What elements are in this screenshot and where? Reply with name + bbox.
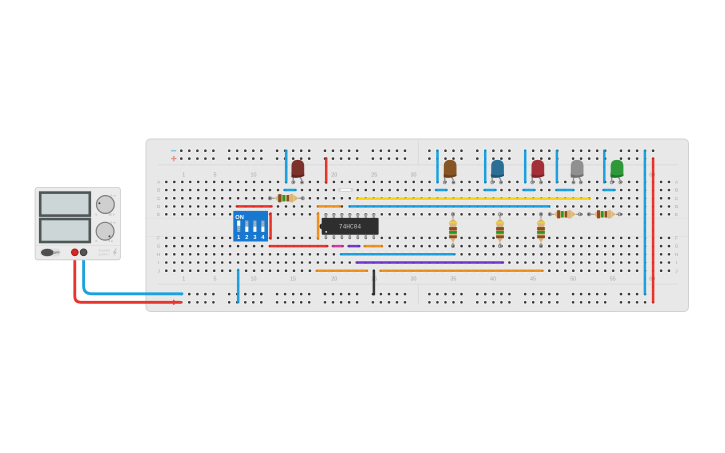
svg-text:45: 45	[530, 276, 536, 282]
svg-text:0 m: 0 m	[111, 221, 117, 225]
svg-text:SUPPLY: SUPPLY	[98, 253, 110, 257]
svg-text:30 V: 30 V	[109, 213, 115, 217]
svg-text:5 A: 5 A	[109, 239, 113, 243]
svg-text:40: 40	[490, 276, 496, 282]
svg-text:F: F	[157, 236, 160, 241]
svg-text:20: 20	[331, 173, 337, 179]
svg-text:55: 55	[610, 276, 616, 282]
svg-text:15: 15	[290, 276, 296, 282]
svg-text:1: 1	[182, 276, 185, 282]
svg-text:ON: ON	[235, 215, 244, 221]
svg-text:5: 5	[214, 173, 217, 179]
svg-text:H: H	[157, 252, 160, 257]
svg-text:J: J	[158, 268, 160, 273]
svg-text:1: 1	[182, 173, 185, 179]
svg-text:1: 1	[237, 235, 240, 241]
svg-text:J: J	[675, 268, 677, 273]
svg-text:2: 2	[245, 235, 248, 241]
svg-text:I: I	[158, 260, 159, 265]
svg-text:25: 25	[371, 173, 377, 179]
svg-text:5: 5	[214, 276, 217, 282]
svg-text:B: B	[675, 188, 678, 193]
svg-text:OFF: OFF	[53, 251, 60, 255]
svg-text:3: 3	[253, 235, 256, 241]
svg-text:G: G	[675, 244, 679, 249]
svg-text:B: B	[157, 188, 160, 193]
svg-text:0 m: 0 m	[111, 194, 117, 198]
svg-text:10: 10	[251, 173, 257, 179]
svg-text:50: 50	[570, 276, 576, 282]
svg-text:30: 30	[411, 173, 417, 179]
svg-text:I: I	[676, 260, 677, 265]
svg-text:35: 35	[450, 276, 456, 282]
svg-text:F: F	[675, 236, 678, 241]
svg-text:30: 30	[411, 276, 417, 282]
svg-text:E: E	[675, 212, 678, 217]
svg-text:74HC04: 74HC04	[339, 224, 362, 231]
svg-text:10: 10	[251, 276, 257, 282]
svg-text:E: E	[157, 212, 160, 217]
svg-text:G: G	[157, 244, 161, 249]
svg-text:20: 20	[331, 276, 337, 282]
svg-text:H: H	[675, 252, 678, 257]
